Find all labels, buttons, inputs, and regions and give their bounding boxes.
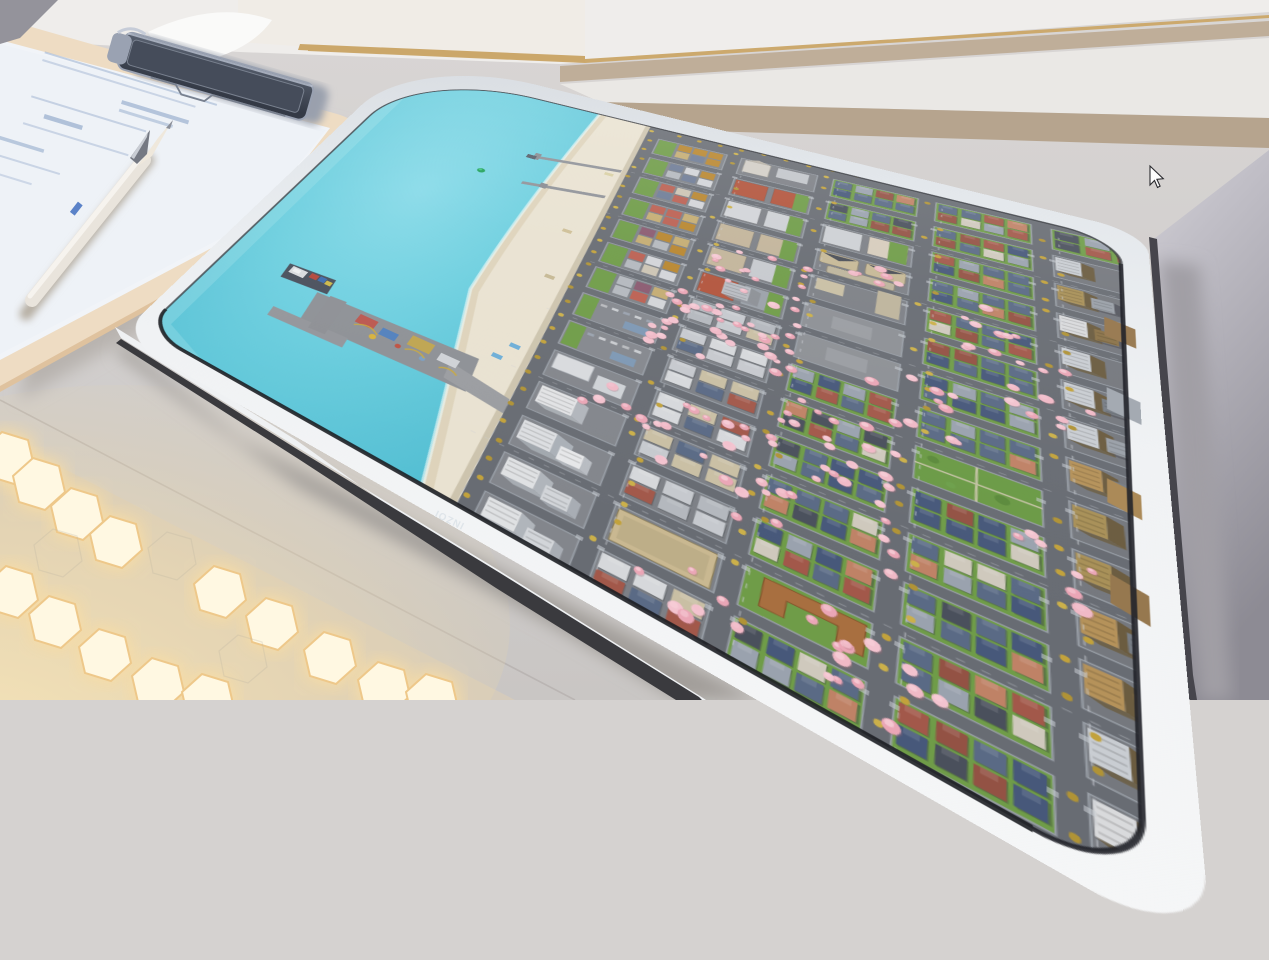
svg-text:INZOI: INZOI [433, 507, 466, 531]
